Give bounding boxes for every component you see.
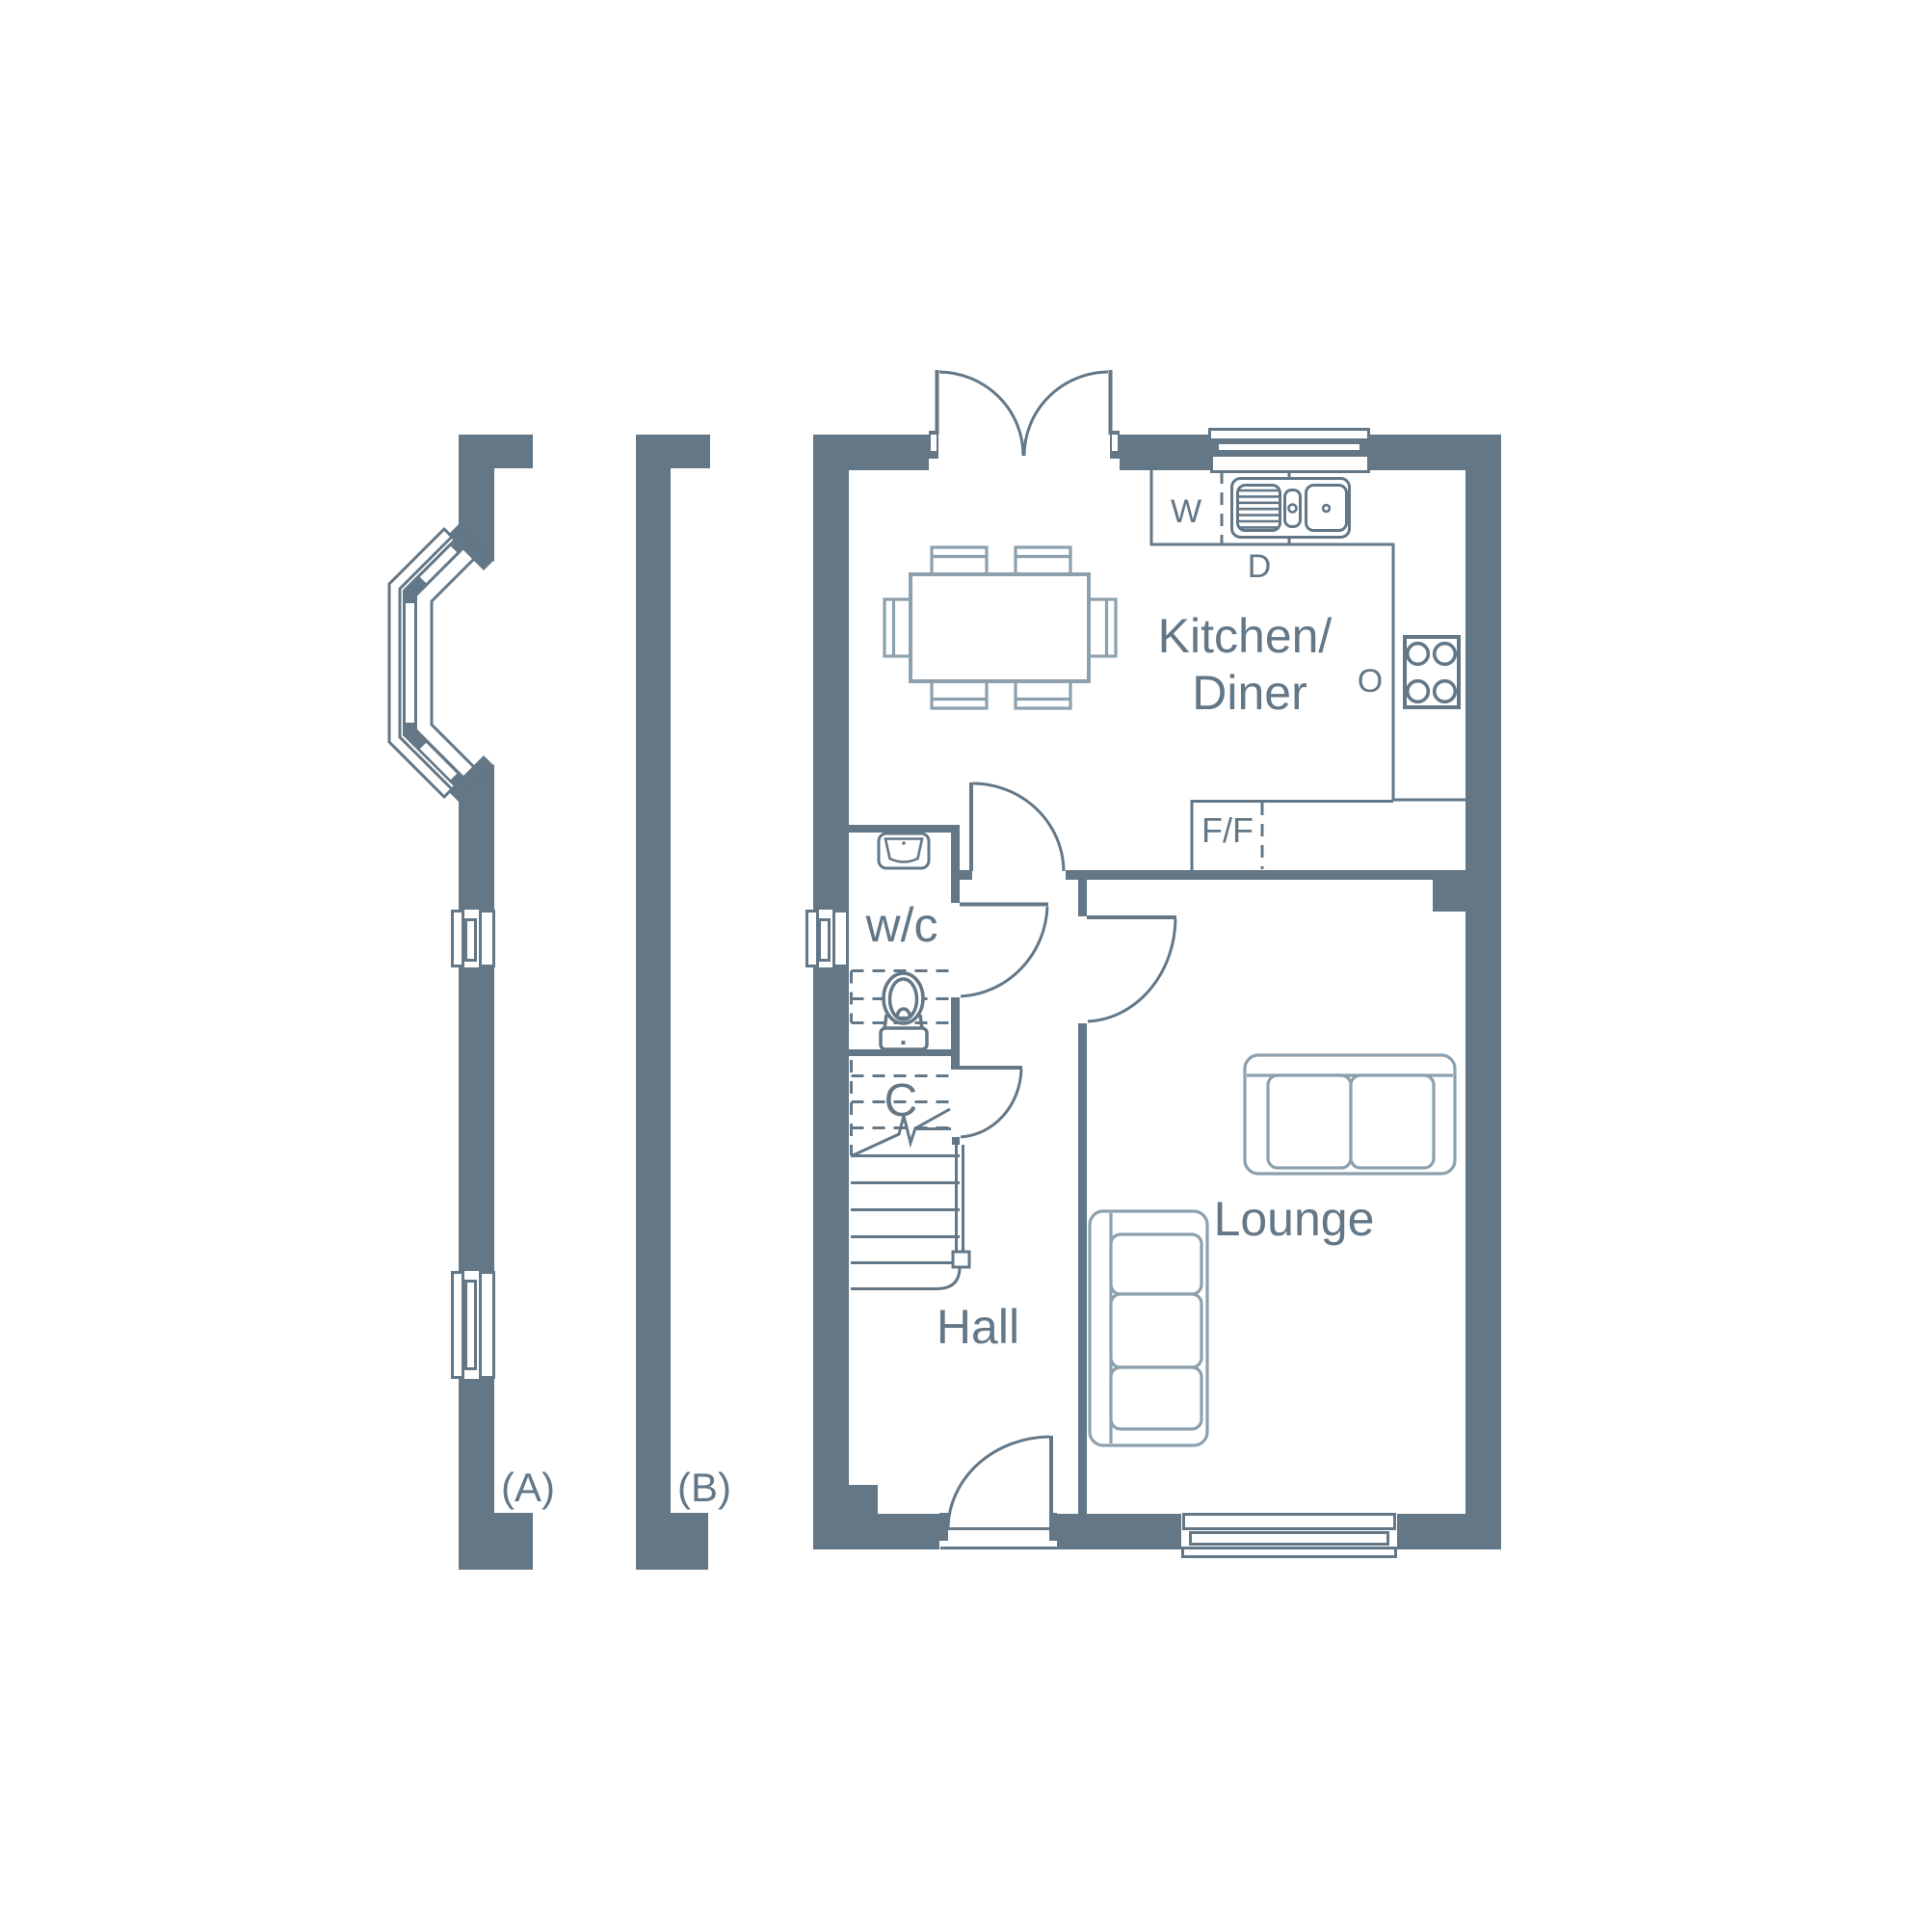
- svg-text:C: C: [884, 1075, 918, 1126]
- svg-text:Diner: Diner: [1192, 666, 1307, 720]
- svg-text:Hall: Hall: [937, 1300, 1019, 1354]
- svg-text:F/F: F/F: [1201, 810, 1254, 850]
- svg-text:w/c: w/c: [865, 898, 938, 952]
- svg-text:D: D: [1248, 548, 1272, 585]
- svg-text:Kitchen/: Kitchen/: [1158, 609, 1333, 663]
- svg-text:W: W: [1171, 493, 1201, 530]
- svg-text:Lounge: Lounge: [1214, 1192, 1375, 1246]
- svg-text:(A): (A): [501, 1465, 555, 1510]
- svg-text:O: O: [1358, 663, 1383, 700]
- svg-text:(B): (B): [677, 1465, 731, 1510]
